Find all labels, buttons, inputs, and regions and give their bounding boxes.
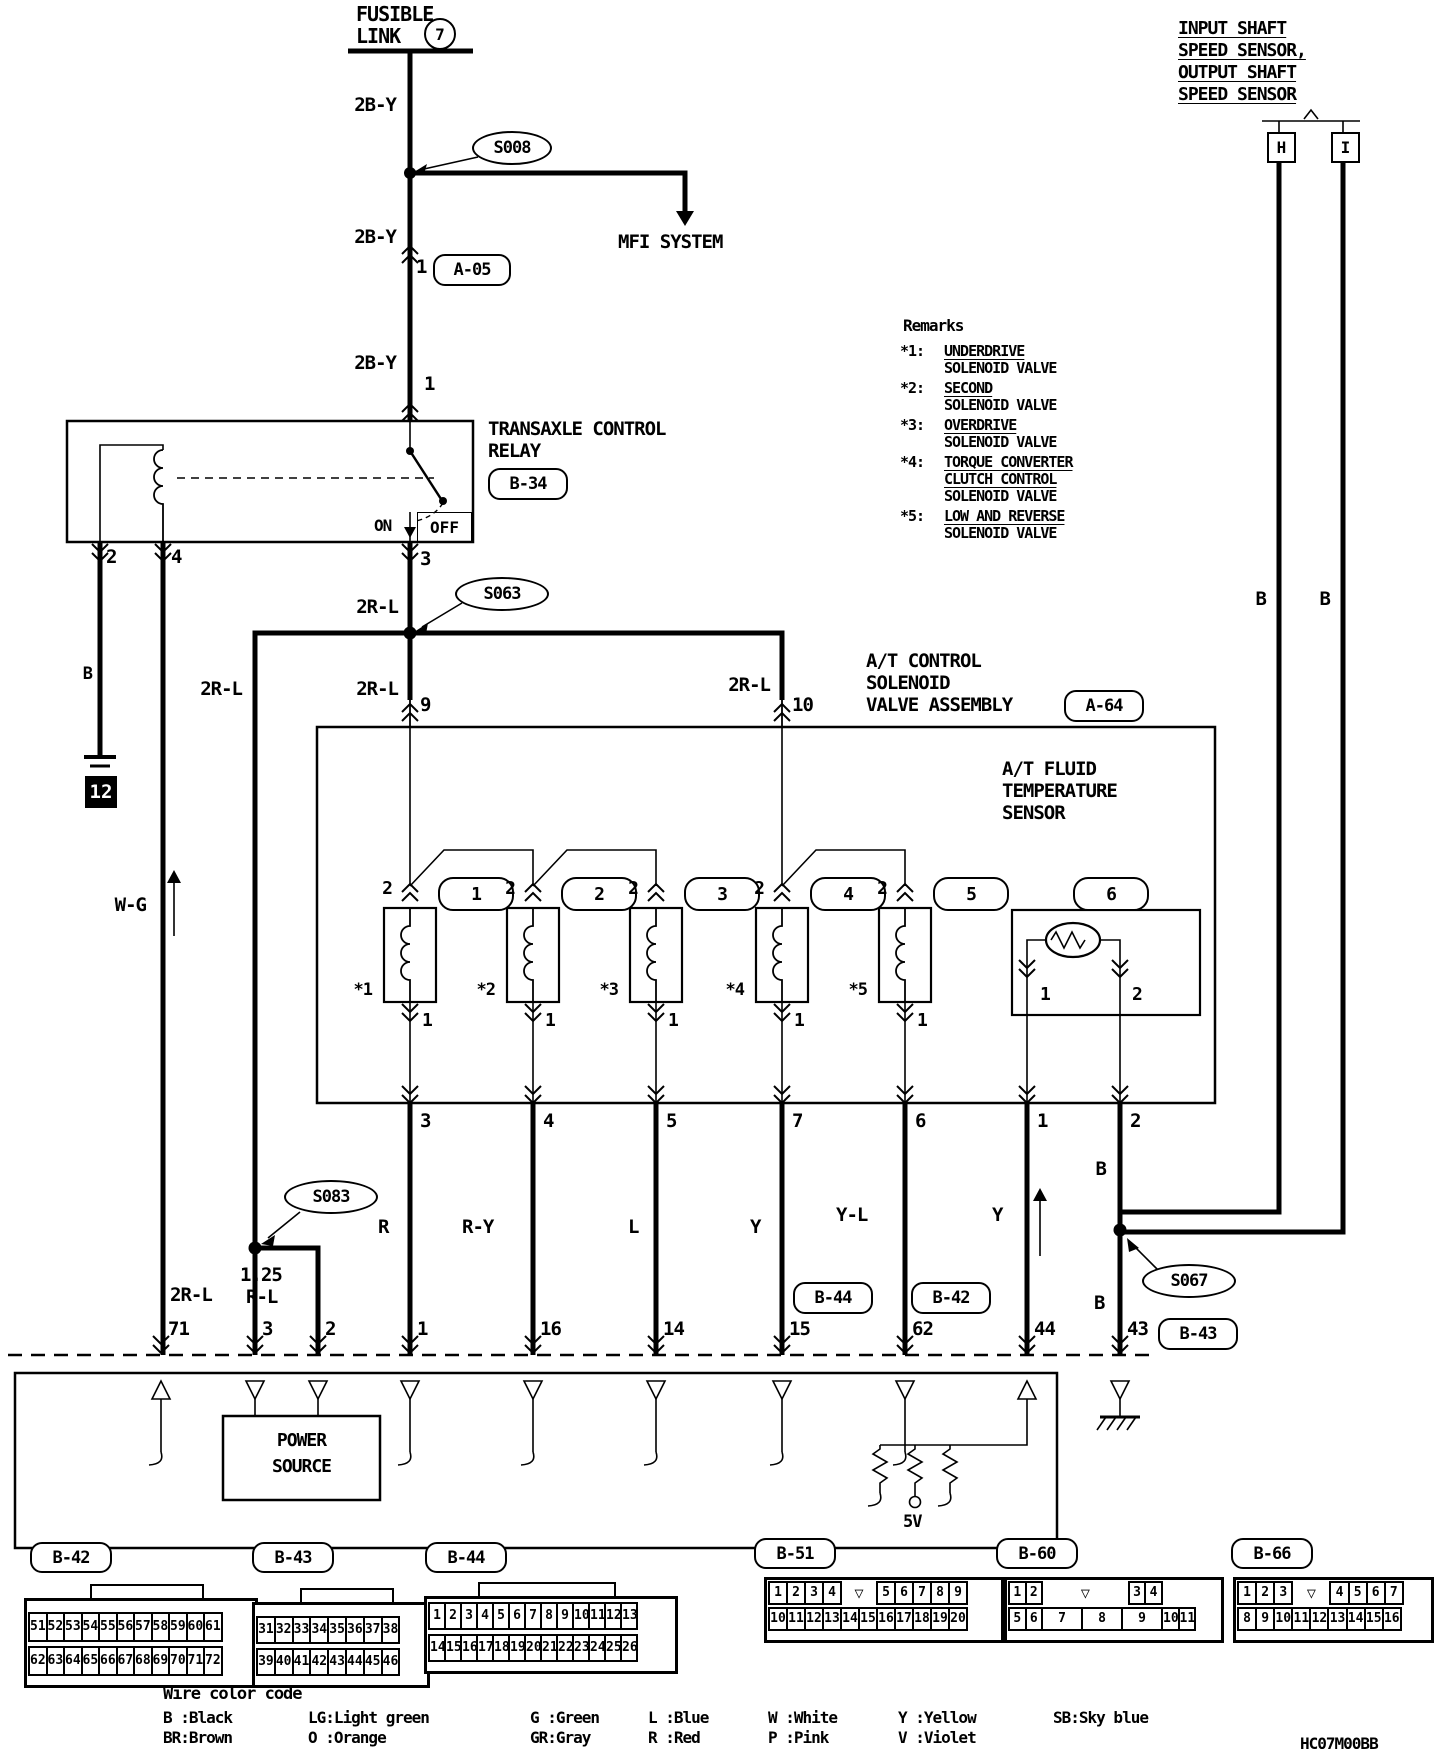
wiring-diagram-page: FUSIBLE LINK 7 2B-Y 2B-Y 2B-Y S008 MFI S… — [0, 0, 1440, 1764]
splice-s083-label: S083 — [284, 1180, 378, 1214]
solenoid-bottom-pin-label: 1 — [422, 1012, 432, 1031]
connector-cell: 26 — [620, 1634, 638, 1662]
wire-color-label: L — [628, 1218, 638, 1238]
connector-cell: 46 — [381, 1648, 401, 1676]
assembly-title-1: A/T CONTROL — [866, 652, 981, 672]
ecu-pin-label: 1 — [417, 1320, 427, 1340]
connector-chevron-icon — [402, 893, 418, 901]
color-code-entry: O :Orange — [308, 1730, 386, 1747]
relay-box — [67, 421, 473, 542]
connector-chevron-icon — [402, 884, 418, 892]
wire-label-2rl-b: 2R-L — [178, 680, 242, 700]
connector-cell: 5 — [1348, 1581, 1368, 1605]
remark-line: SECOND — [944, 381, 992, 397]
assembly-bottom-pin-label: 1 — [1037, 1112, 1047, 1132]
connector-cell: 17 — [894, 1607, 914, 1631]
relay-pin3-label: 3 — [420, 550, 430, 570]
connector-ref-a05: A-05 — [433, 254, 511, 286]
temp-lead2-label: 2 — [1132, 986, 1142, 1005]
assembly-bottom-pin-label: 6 — [915, 1112, 925, 1132]
connector-cell: 11 — [1178, 1607, 1197, 1631]
solenoid-symbols — [384, 908, 931, 1103]
wire-color-label: R-Y — [462, 1218, 493, 1238]
connector-label-B-43: B-43 — [252, 1542, 334, 1573]
temp-sensor-title-3: SENSOR — [1002, 804, 1065, 824]
keyway-icon: ▽ — [1041, 1581, 1130, 1605]
connector-cell: 5 — [876, 1581, 896, 1605]
connector-row: 6263646566676869707172 — [30, 1646, 223, 1676]
connector-cell: 11 — [1291, 1607, 1311, 1631]
remark-line: SOLENOID VALVE — [944, 526, 1056, 542]
power-source-label-2: SOURCE — [223, 1458, 380, 1477]
connector-cell: 9 — [1255, 1607, 1275, 1631]
connector-label-B-60: B-60 — [996, 1538, 1078, 1569]
sensor-connector-i: I — [1331, 132, 1360, 163]
splice-s063-label: S063 — [455, 577, 549, 611]
remarks-title: Remarks — [903, 318, 963, 335]
remark-key: *4: — [900, 455, 924, 471]
keyway-icon: ▽ — [840, 1581, 878, 1605]
connector-row: 123▽4567 — [1239, 1581, 1404, 1605]
wire-label-b-temp2: B — [1094, 1294, 1104, 1314]
sensor-bracket-caret — [1304, 110, 1318, 119]
mfi-branch-wire — [410, 173, 685, 212]
connector-cell: 14 — [840, 1607, 860, 1631]
solenoid-badge-5: 5 — [933, 877, 1009, 911]
connector-cell: 72 — [203, 1646, 223, 1676]
assembly-bottom-pin-label: 2 — [1130, 1112, 1140, 1132]
connector-cell: 1 — [768, 1581, 788, 1605]
temp-sensor-resistor — [1046, 923, 1100, 957]
connector-cell: 4 — [1144, 1581, 1163, 1605]
wire-label-2rl-d: 2R-L — [706, 676, 770, 696]
connector-row: 8910111213141516 — [1239, 1607, 1402, 1631]
solenoid-top-pin-label: 2 — [493, 880, 515, 899]
fusible-link-title-1: FUSIBLE — [356, 4, 433, 25]
solenoid-star-label: *3 — [588, 982, 618, 1000]
sensor-title-3: OUTPUT SHAFT — [1178, 64, 1296, 83]
connector-label-B-51: B-51 — [754, 1538, 836, 1569]
connector-chevron-icon — [774, 884, 790, 892]
remark-line: OVERDRIVE — [944, 418, 1016, 434]
connector-cell: 7 — [1041, 1607, 1083, 1631]
relay-coil — [154, 450, 163, 542]
sensor-title-4: SPEED SENSOR — [1178, 86, 1296, 105]
remark-line: CLUTCH CONTROL — [944, 472, 1056, 488]
connector-row: 5152535455565758596061 — [30, 1612, 223, 1642]
connector-cell: 7 — [1384, 1581, 1404, 1605]
connector-cell: 10 — [1273, 1607, 1293, 1631]
solenoid-star-label: *4 — [714, 982, 744, 1000]
relay-switch-blade — [410, 451, 441, 499]
wire-label-b-ground: B — [68, 666, 92, 684]
s063-pointer — [422, 603, 462, 627]
connector-row: 1011121314151617181920 — [770, 1607, 968, 1631]
splice-s067-label: S067 — [1142, 1264, 1236, 1298]
connector-cell: 12 — [804, 1607, 824, 1631]
connector-chevron-icon — [774, 893, 790, 901]
wire-label-rl: R-L — [246, 1288, 277, 1308]
assembly-output-wires — [410, 1103, 1120, 1355]
solenoid-bottom-pin-label: 1 — [917, 1012, 927, 1031]
temp-sensor-zigzag — [1051, 932, 1085, 948]
solenoid-badge-6: 6 — [1073, 877, 1149, 911]
color-code-entry: Y :Yellow — [898, 1710, 976, 1727]
assembly-bottom-pin-label: 3 — [420, 1112, 430, 1132]
ecu-pin-label: 3 — [262, 1320, 272, 1340]
connector-cell: 8 — [1081, 1607, 1123, 1631]
connector-chevron-icon — [648, 893, 664, 901]
sensor-wire-h — [1120, 160, 1279, 1212]
wire-label-b-sensor2: B — [1302, 590, 1330, 610]
connector-ref-b42: B-42 — [911, 1282, 991, 1314]
wire-color-label: Y-L — [836, 1206, 867, 1226]
s083-pointer — [268, 1212, 300, 1238]
assembly-feed-lines — [410, 727, 782, 884]
connector-cell: 13 — [1327, 1607, 1347, 1631]
connector-cell: 4 — [1329, 1581, 1349, 1605]
wire-color-label: R — [378, 1218, 388, 1238]
color-code-entry: LG:Light green — [308, 1710, 429, 1727]
solenoid-star-label: *5 — [837, 982, 867, 1000]
solenoid-star-label: *2 — [465, 982, 495, 1000]
solenoid-top-pin-label: 2 — [616, 880, 638, 899]
assembly-bottom-pin-label: 7 — [792, 1112, 802, 1132]
connector-chevron-icon — [897, 893, 913, 901]
keyway-icon: ▽ — [1291, 1581, 1331, 1605]
connector-cell: 16 — [1382, 1607, 1402, 1631]
color-code-entry: G :Green — [530, 1710, 599, 1727]
sensor-title-1: INPUT SHAFT — [1178, 20, 1286, 39]
fivev-label: 5V — [903, 1514, 921, 1532]
rl-bus-wire — [255, 633, 782, 1248]
remark-line: LOW AND REVERSE — [944, 509, 1064, 525]
solenoid-star-label: *1 — [342, 982, 372, 1000]
wire-label-2rl-c: 2R-L — [334, 680, 398, 700]
ecu-pin-label: 43 — [1127, 1320, 1148, 1340]
relay-on-label: ON — [374, 518, 391, 535]
assembly-title-3: VALVE ASSEMBLY — [866, 696, 1012, 716]
color-code-entry: L :Blue — [648, 1710, 708, 1727]
connector-ref-b43: B-43 — [1158, 1318, 1238, 1350]
connector-row: 14151617181920212223242526 — [430, 1634, 638, 1662]
color-code-entry: W :White — [768, 1710, 837, 1727]
remark-line: SOLENOID VALVE — [944, 361, 1056, 377]
relay-off-label: OFF — [417, 512, 472, 542]
assembly-bottom-pin-label: 5 — [666, 1112, 676, 1132]
wire-label-2rl-a: 2R-L — [334, 598, 398, 618]
ecu-pin-label: 2 — [325, 1320, 335, 1340]
splice-s008-label: S008 — [472, 131, 552, 165]
connector-cell: 4 — [822, 1581, 842, 1605]
pin9-10-entries — [410, 700, 782, 727]
temp-sensor-title-2: TEMPERATURE — [1002, 782, 1117, 802]
remark-key: *1: — [900, 344, 924, 360]
remark-line: UNDERDRIVE — [944, 344, 1024, 360]
connector-cell: 15 — [1364, 1607, 1384, 1631]
connector-ref-a64: A-64 — [1064, 690, 1144, 722]
connector-row: 12▽34 — [1010, 1581, 1163, 1605]
ecu-pin-label: 44 — [1034, 1320, 1055, 1340]
solenoid-top-pin-label: 2 — [865, 880, 887, 899]
a05-pin-label: 1 — [416, 258, 426, 278]
connector-cell: 14 — [1346, 1607, 1366, 1631]
color-code-entry: BR:Brown — [163, 1730, 232, 1747]
connector-cell: 16 — [876, 1607, 896, 1631]
connector-label-B-66: B-66 — [1231, 1538, 1313, 1569]
connector-cell: 6 — [1366, 1581, 1386, 1605]
wire-label-2by-1: 2B-Y — [332, 96, 396, 116]
connector-row: 12345678910111213 — [430, 1602, 638, 1630]
solenoid-top-pin-label: 2 — [742, 880, 764, 899]
connector-cell: 9 — [1121, 1607, 1163, 1631]
connector-chevron-icon — [525, 884, 541, 892]
assembly-bottom-pin-label: 4 — [543, 1112, 553, 1132]
splice-s067-dot — [1114, 1224, 1127, 1237]
connector-cell: 6 — [894, 1581, 914, 1605]
connector-row: 1234▽56789 — [770, 1581, 968, 1605]
sensor-wire-i — [1120, 160, 1343, 1232]
connector-row: 3940414243444546 — [258, 1648, 400, 1676]
connector-cell: 7 — [912, 1581, 932, 1605]
relay-title-2: RELAY — [488, 442, 540, 462]
ecu-pin-label: 62 — [912, 1320, 933, 1340]
solenoid-bottom-pin-label: 1 — [794, 1012, 804, 1031]
connector-chevron-icon — [897, 884, 913, 892]
connector-cell: 61 — [203, 1612, 223, 1642]
connector-cell: 12 — [1309, 1607, 1329, 1631]
connector-cell: 38 — [381, 1616, 401, 1644]
relay-title-1: TRANSAXLE CONTROL — [488, 420, 665, 440]
connector-ref-b34: B-34 — [488, 468, 568, 500]
connector-ref-b44: B-44 — [793, 1282, 873, 1314]
mfi-arrowhead-icon — [676, 211, 694, 226]
sensor-bracket — [1262, 121, 1360, 132]
sensor-title-2: SPEED SENSOR, — [1178, 42, 1306, 61]
wire-color-label: Y — [992, 1206, 1002, 1226]
y-direction-arrowhead — [1033, 1188, 1047, 1201]
relay-pin1-label: 1 — [424, 375, 434, 395]
connector-label-B-42: B-42 — [30, 1542, 112, 1573]
relay-pin4-label: 4 — [171, 548, 181, 568]
fuse-number: 7 — [435, 25, 445, 44]
temp-sensor-title-1: A/T FLUID — [1002, 760, 1096, 780]
ecu-box — [15, 1373, 1057, 1548]
wire-label-125: 1.25 — [240, 1266, 282, 1286]
connector-cell: 3 — [804, 1581, 824, 1605]
color-code-entry: B :Black — [163, 1710, 232, 1727]
connector-row: 567891011 — [1010, 1607, 1196, 1631]
wire-color-label: Y — [750, 1218, 760, 1238]
color-code-entry: GR:Gray — [530, 1730, 590, 1747]
solenoid-bottom-pin-label: 1 — [545, 1012, 555, 1031]
connector-cell: 1 — [1237, 1581, 1257, 1605]
connector-cell: 18 — [912, 1607, 932, 1631]
ground-12-icon: 12 — [85, 776, 117, 808]
connector-label-B-44: B-44 — [425, 1542, 507, 1573]
doc-code: HC07M00BB — [1300, 1736, 1378, 1753]
assembly-title-2: SOLENOID — [866, 674, 950, 694]
relay-on-arrow — [404, 527, 416, 538]
solenoid-top-pin-label: 2 — [370, 880, 392, 899]
temp-lead1-label: 1 — [1040, 986, 1050, 1005]
wire-label-wg: W-G — [86, 896, 146, 916]
connector-cell: 10 — [768, 1607, 788, 1631]
ecu-pin-label: 15 — [789, 1320, 810, 1340]
remark-line: SOLENOID VALVE — [944, 398, 1056, 414]
color-code-title: Wire color code — [163, 1686, 302, 1704]
relay-pin2-label: 2 — [106, 548, 116, 568]
assembly-pin10-label: 10 — [792, 696, 813, 716]
solenoid-bottom-pin-label: 1 — [668, 1012, 678, 1031]
remark-key: *2: — [900, 381, 924, 397]
ecu-pin-label: 71 — [168, 1320, 189, 1340]
ecu-pin-label: 14 — [663, 1320, 684, 1340]
connector-cell: 15 — [858, 1607, 878, 1631]
connector-cell: 20 — [948, 1607, 968, 1631]
connector-cell: 13 — [620, 1602, 638, 1630]
remark-line: SOLENOID VALVE — [944, 435, 1056, 451]
connector-cell: 13 — [822, 1607, 842, 1631]
connector-cell: 19 — [930, 1607, 950, 1631]
s067-pointer — [1134, 1246, 1158, 1270]
connector-cell: 3 — [1273, 1581, 1293, 1605]
connector-chevron-icon — [525, 893, 541, 901]
connector-cell: 8 — [930, 1581, 950, 1605]
fuse-number-icon: 7 — [424, 18, 456, 50]
ecu-pin-label: 16 — [540, 1320, 561, 1340]
connector-chevron-icon — [648, 884, 664, 892]
color-code-entry: R :Red — [648, 1730, 700, 1747]
remark-line: TORQUE CONVERTER — [944, 455, 1073, 471]
wire-label-b-sensor1: B — [1238, 590, 1266, 610]
color-code-entry: SB:Sky blue — [1053, 1710, 1148, 1727]
mfi-system-label: MFI SYSTEM — [618, 233, 722, 253]
connector-row: 3132333435363738 — [258, 1616, 400, 1644]
s083-pointer-head — [261, 1235, 275, 1246]
wire-label-2rl-e: 2R-L — [170, 1286, 212, 1306]
power-source-label-1: POWER — [223, 1432, 380, 1451]
sensor-connector-h: H — [1267, 132, 1296, 163]
fusible-link-title-2: LINK — [356, 26, 400, 47]
color-code-entry: V :Violet — [898, 1730, 976, 1747]
wire-label-2by-3: 2B-Y — [332, 354, 396, 374]
color-code-entry: P :Pink — [768, 1730, 828, 1747]
connector-cell: 9 — [948, 1581, 968, 1605]
s008-pointer — [424, 157, 478, 169]
connector-cell: 2 — [1255, 1581, 1275, 1605]
assembly-pin9-label: 9 — [420, 696, 430, 716]
connector-cell: 2 — [786, 1581, 806, 1605]
wg-direction-arrowhead — [167, 870, 181, 883]
wire-label-2by-2: 2B-Y — [332, 228, 396, 248]
remark-key: *3: — [900, 418, 924, 434]
connector-cell: 8 — [1237, 1607, 1257, 1631]
remark-key: *5: — [900, 509, 924, 525]
connector-cell: 11 — [786, 1607, 806, 1631]
remark-line: SOLENOID VALVE — [944, 489, 1056, 505]
wire-label-b-temp: B — [1076, 1160, 1106, 1180]
